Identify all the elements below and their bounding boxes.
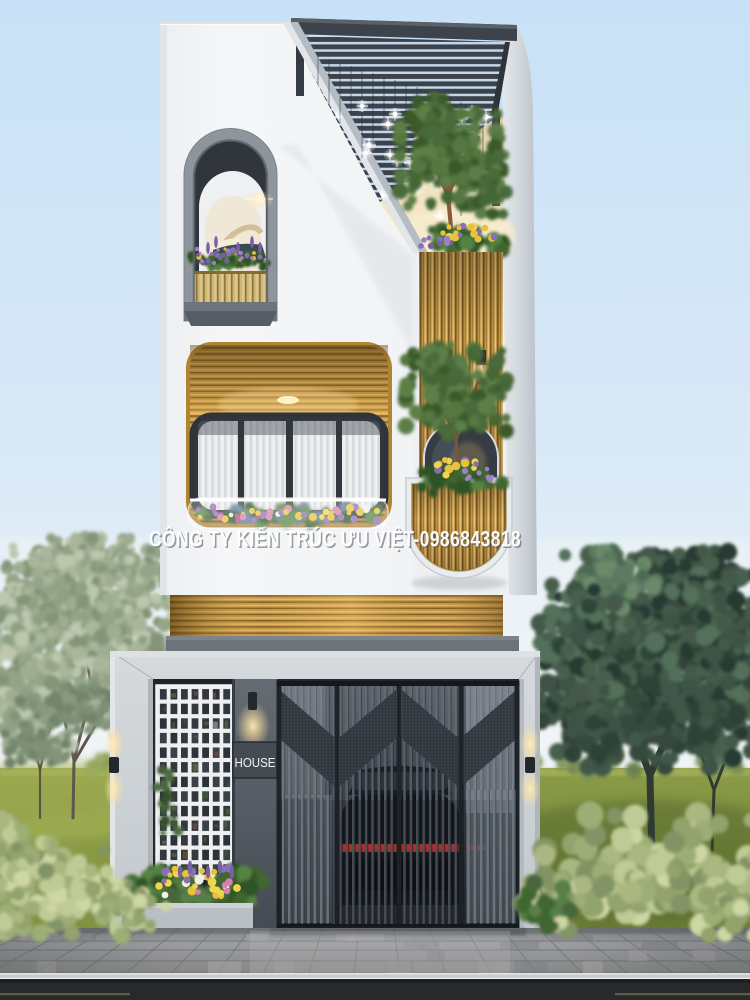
svg-text:CÔNG TY KIẾN TRÚC ƯU VIỆT-0986: CÔNG TY KIẾN TRÚC ƯU VIỆT-0986843818 bbox=[149, 527, 521, 552]
svg-text:HOUSE: HOUSE bbox=[235, 756, 276, 770]
